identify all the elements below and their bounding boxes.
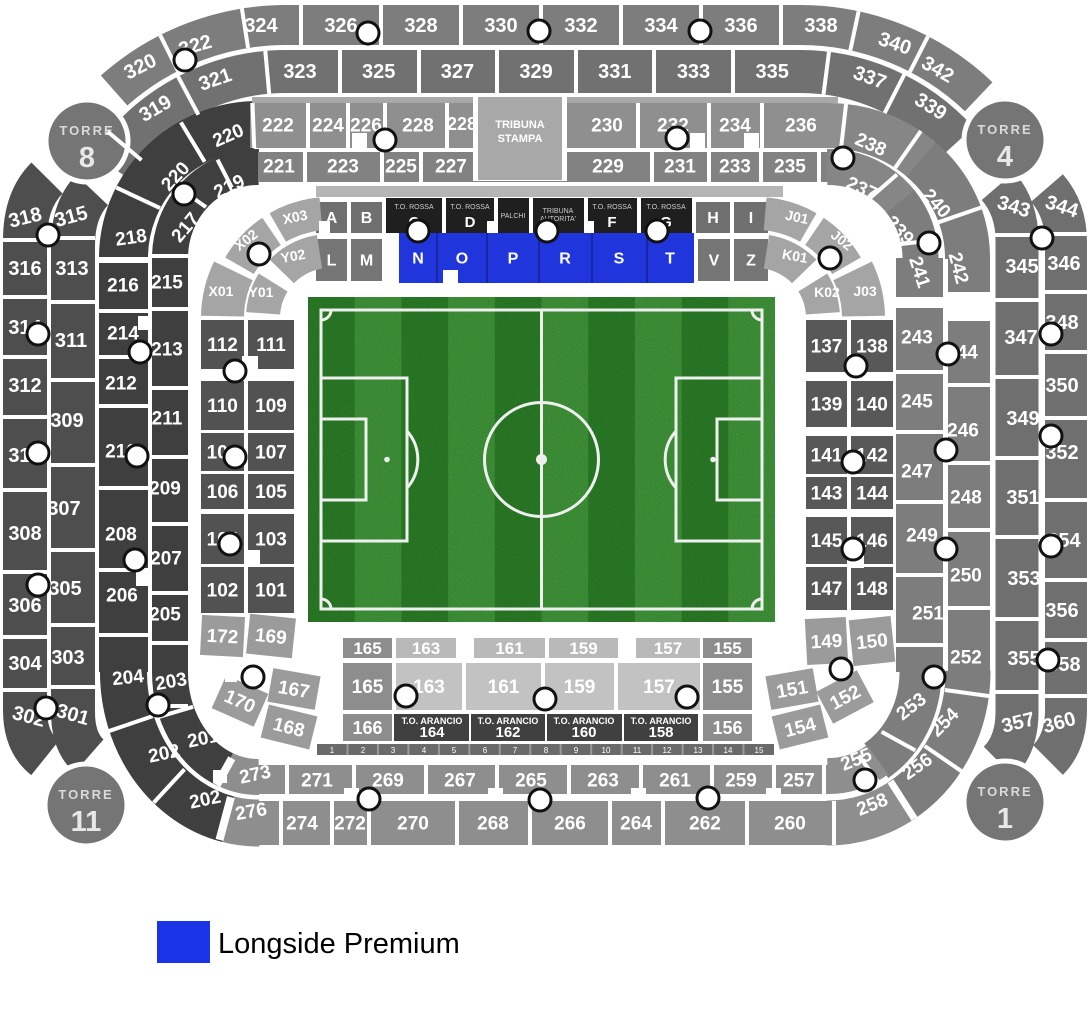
svg-text:272: 272	[334, 814, 366, 835]
svg-text:246: 246	[947, 421, 979, 442]
svg-text:TRIBUNA: TRIBUNA	[495, 119, 545, 131]
svg-text:259: 259	[725, 771, 757, 792]
svg-text:12: 12	[663, 746, 672, 755]
svg-text:101: 101	[255, 581, 287, 602]
svg-text:212: 212	[105, 374, 137, 395]
svg-text:268: 268	[477, 814, 509, 835]
svg-text:TORRE: TORRE	[59, 123, 114, 138]
svg-text:160: 160	[571, 724, 596, 741]
svg-text:327: 327	[441, 61, 474, 83]
svg-text:304: 304	[8, 653, 42, 675]
svg-text:252: 252	[950, 648, 982, 669]
svg-text:159: 159	[564, 677, 596, 698]
svg-text:225: 225	[385, 157, 417, 178]
svg-text:250: 250	[950, 566, 982, 587]
svg-text:T: T	[665, 251, 675, 268]
svg-text:149: 149	[810, 631, 843, 654]
svg-text:TORRE: TORRE	[977, 122, 1032, 137]
svg-text:R: R	[559, 251, 571, 268]
svg-text:3: 3	[391, 746, 396, 755]
svg-text:338: 338	[804, 15, 837, 37]
svg-text:271: 271	[301, 771, 333, 792]
svg-text:356: 356	[1045, 600, 1078, 622]
svg-text:150: 150	[855, 630, 889, 654]
svg-text:346: 346	[1047, 253, 1080, 275]
svg-text:J03: J03	[853, 283, 877, 299]
svg-text:333: 333	[677, 61, 710, 83]
svg-text:5: 5	[452, 746, 457, 755]
svg-text:8: 8	[79, 142, 95, 174]
svg-text:139: 139	[811, 395, 843, 416]
svg-text:216: 216	[107, 276, 139, 297]
svg-text:229: 229	[592, 157, 624, 178]
svg-text:TORRE: TORRE	[977, 784, 1032, 799]
svg-text:264: 264	[620, 814, 652, 835]
svg-text:270: 270	[397, 814, 429, 835]
svg-text:103: 103	[255, 530, 287, 551]
svg-text:325: 325	[362, 61, 395, 83]
svg-text:TORRE: TORRE	[58, 787, 113, 802]
svg-text:309: 309	[50, 410, 83, 432]
svg-text:243: 243	[901, 328, 933, 349]
svg-text:326: 326	[324, 15, 357, 37]
svg-text:111: 111	[256, 335, 286, 356]
svg-text:330: 330	[484, 15, 517, 37]
svg-text:162: 162	[495, 724, 520, 741]
svg-text:10: 10	[602, 746, 611, 755]
svg-text:228: 228	[402, 116, 434, 137]
svg-text:T.O. ROSSA: T.O. ROSSA	[592, 204, 632, 211]
svg-text:169: 169	[254, 625, 288, 649]
svg-text:165: 165	[353, 639, 381, 658]
svg-text:156: 156	[712, 718, 742, 738]
svg-text:204: 204	[111, 666, 145, 690]
svg-text:234: 234	[719, 116, 751, 137]
svg-text:2: 2	[361, 746, 366, 755]
svg-text:T.O. ROSSA: T.O. ROSSA	[450, 204, 490, 211]
svg-text:335: 335	[756, 61, 789, 83]
svg-text:T.O. ROSSA: T.O. ROSSA	[394, 204, 434, 211]
svg-text:K02: K02	[814, 284, 840, 300]
svg-text:312: 312	[8, 375, 41, 397]
svg-text:231: 231	[664, 157, 696, 178]
svg-text:138: 138	[856, 337, 888, 358]
svg-text:218: 218	[114, 226, 148, 251]
svg-text:9: 9	[574, 746, 579, 755]
svg-text:336: 336	[724, 15, 757, 37]
svg-text:157: 157	[643, 677, 675, 698]
svg-text:209: 209	[149, 479, 181, 500]
svg-text:Z: Z	[746, 253, 756, 270]
svg-text:228: 228	[447, 114, 477, 134]
svg-text:110: 110	[207, 396, 238, 417]
svg-text:345: 345	[1005, 256, 1038, 278]
svg-text:324: 324	[244, 15, 278, 37]
svg-text:262: 262	[689, 814, 721, 835]
svg-text:H: H	[707, 210, 719, 227]
svg-text:11: 11	[71, 806, 102, 838]
svg-text:323: 323	[283, 61, 316, 83]
svg-text:211: 211	[152, 409, 183, 430]
svg-text:305: 305	[48, 578, 81, 600]
svg-text:223: 223	[327, 157, 359, 178]
svg-text:137: 137	[811, 337, 843, 358]
svg-text:164: 164	[419, 724, 445, 741]
svg-text:208: 208	[105, 525, 137, 546]
svg-text:251: 251	[912, 604, 944, 625]
svg-text:257: 257	[783, 771, 815, 792]
svg-text:205: 205	[149, 605, 181, 626]
svg-text:B: B	[361, 210, 373, 227]
svg-text:274: 274	[286, 814, 318, 835]
svg-text:I: I	[749, 210, 753, 227]
svg-text:L: L	[327, 253, 337, 270]
svg-text:Y01: Y01	[249, 284, 274, 300]
svg-text:308: 308	[8, 523, 41, 545]
svg-text:13: 13	[694, 746, 703, 755]
svg-text:S: S	[614, 251, 625, 268]
svg-text:158: 158	[648, 724, 673, 741]
svg-text:249: 249	[906, 526, 938, 547]
svg-text:140: 140	[856, 395, 888, 416]
svg-text:11: 11	[633, 746, 642, 755]
svg-text:V: V	[709, 253, 720, 270]
svg-text:221: 221	[263, 157, 295, 178]
svg-text:269: 269	[372, 771, 404, 792]
svg-text:4: 4	[422, 746, 427, 755]
svg-text:331: 331	[598, 61, 631, 83]
svg-text:165: 165	[352, 677, 384, 698]
svg-text:106: 106	[207, 482, 239, 503]
svg-text:313: 313	[55, 258, 88, 280]
svg-text:245: 245	[901, 392, 933, 413]
svg-text:347: 347	[1004, 327, 1037, 349]
svg-text:14: 14	[724, 746, 733, 755]
svg-text:266: 266	[554, 814, 586, 835]
svg-text:102: 102	[207, 581, 239, 602]
svg-text:163: 163	[412, 639, 440, 658]
svg-text:161: 161	[488, 677, 520, 698]
svg-text:1: 1	[330, 746, 335, 755]
svg-text:306: 306	[8, 595, 41, 617]
svg-text:267: 267	[444, 771, 476, 792]
svg-text:233: 233	[719, 157, 751, 178]
svg-text:159: 159	[569, 639, 597, 658]
svg-text:230: 230	[591, 116, 623, 137]
svg-text:143: 143	[811, 484, 843, 505]
svg-text:X01: X01	[209, 283, 234, 299]
svg-text:353: 353	[1007, 568, 1040, 590]
svg-text:147: 147	[811, 579, 843, 600]
svg-text:8: 8	[544, 746, 549, 755]
svg-text:166: 166	[352, 718, 382, 738]
svg-text:F: F	[607, 214, 616, 231]
svg-text:145: 145	[811, 531, 843, 552]
svg-text:107: 107	[255, 443, 287, 464]
svg-text:172: 172	[206, 626, 239, 649]
svg-text:T.O. ROSSA: T.O. ROSSA	[646, 204, 686, 211]
svg-text:349: 349	[1006, 408, 1039, 430]
svg-text:6: 6	[483, 746, 488, 755]
svg-text:311: 311	[55, 330, 87, 352]
svg-text:207: 207	[150, 549, 182, 570]
svg-text:222: 222	[262, 116, 294, 137]
svg-text:M: M	[360, 253, 373, 270]
svg-text:248: 248	[950, 488, 982, 509]
svg-text:235: 235	[774, 157, 806, 178]
svg-text:351: 351	[1006, 487, 1039, 509]
svg-text:307: 307	[47, 498, 80, 520]
svg-text:316: 316	[8, 258, 41, 280]
svg-text:261: 261	[659, 771, 691, 792]
svg-text:7: 7	[513, 746, 518, 755]
svg-text:141: 141	[811, 446, 843, 467]
svg-text:TRIBUNA: TRIBUNA	[543, 208, 574, 215]
svg-text:109: 109	[255, 396, 287, 417]
svg-text:213: 213	[151, 340, 183, 361]
svg-text:260: 260	[774, 814, 806, 835]
svg-text:332: 332	[564, 15, 597, 37]
svg-text:STAMPA: STAMPA	[498, 133, 543, 145]
svg-text:227: 227	[435, 157, 467, 178]
svg-text:334: 334	[644, 15, 678, 37]
svg-text:155: 155	[713, 639, 741, 658]
svg-text:O: O	[456, 251, 468, 268]
svg-text:P: P	[508, 251, 519, 268]
svg-text:224: 224	[312, 116, 344, 137]
svg-text:215: 215	[151, 273, 183, 294]
svg-text:157: 157	[654, 639, 682, 658]
svg-text:PALCHI: PALCHI	[501, 213, 526, 220]
svg-text:1: 1	[997, 803, 1013, 835]
svg-text:161: 161	[495, 639, 523, 658]
svg-text:N: N	[412, 251, 424, 268]
svg-text:329: 329	[519, 61, 552, 83]
svg-text:15: 15	[755, 746, 764, 755]
svg-text:303: 303	[51, 647, 84, 669]
svg-text:148: 148	[856, 579, 888, 600]
svg-text:236: 236	[785, 116, 817, 137]
svg-text:112: 112	[207, 335, 238, 356]
svg-text:350: 350	[1045, 375, 1078, 397]
svg-text:105: 105	[255, 482, 287, 503]
svg-text:155: 155	[712, 677, 744, 698]
svg-text:Longside Premium: Longside Premium	[218, 928, 460, 960]
svg-text:4: 4	[997, 141, 1013, 173]
svg-text:247: 247	[901, 462, 933, 483]
svg-text:263: 263	[587, 771, 619, 792]
svg-text:D: D	[465, 214, 476, 231]
svg-text:144: 144	[856, 484, 888, 505]
svg-text:328: 328	[404, 15, 437, 37]
svg-text:206: 206	[106, 586, 138, 607]
